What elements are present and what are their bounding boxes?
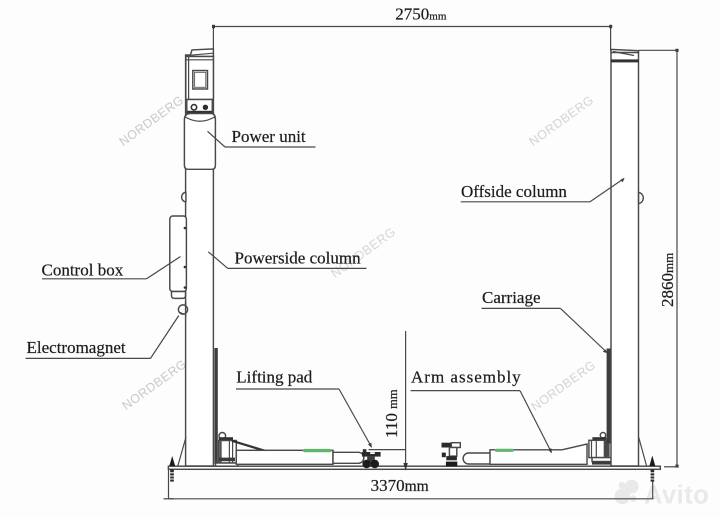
svg-text:Electromagnet: Electromagnet [27, 338, 126, 357]
svg-text:3370mm: 3370mm [371, 476, 429, 495]
svg-text:Arm assembly: Arm assembly [411, 368, 522, 387]
svg-text:Avito: Avito [644, 481, 709, 509]
svg-text:Control box: Control box [42, 260, 124, 279]
svg-text:Powerside column: Powerside column [235, 248, 362, 267]
svg-text:2860mm: 2860mm [658, 253, 677, 307]
svg-text:Power unit: Power unit [232, 127, 306, 146]
svg-text:Offside column: Offside column [461, 182, 567, 201]
svg-text:Carriage: Carriage [482, 288, 541, 307]
svg-text:Lifting pad: Lifting pad [236, 368, 313, 387]
